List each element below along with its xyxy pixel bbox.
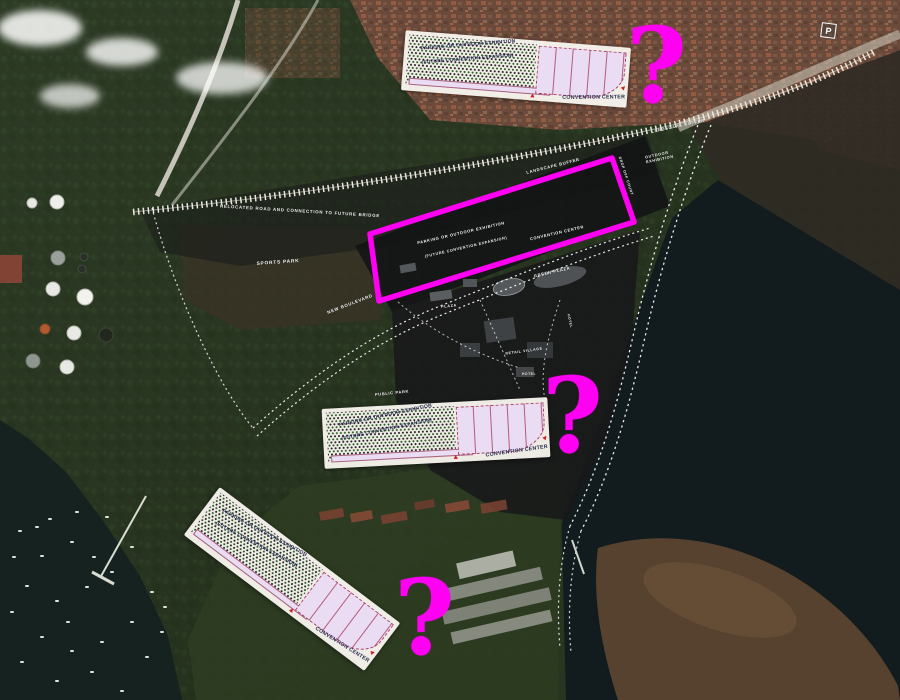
marina-boats [0,0,4,2]
question-mark-central: ? [542,364,603,468]
question-mark-south: ? [394,566,455,670]
aerial-masterplan-map: RELOCATED ROAD AND CONNECTION TO FUTURE … [0,0,900,700]
entry-arrow-icon: ▲ [452,454,459,461]
convention-hall [535,46,626,101]
label-hotel-south: HOTEL [522,372,536,376]
entry-arrow-icon: ▲ [529,92,536,100]
entry-arrow-icon: ▲ [368,649,376,657]
overlay-building-label: CONVENTION CENTER [562,94,625,100]
site-plan-overlay-central: PARKING OR OUTDOOR EXHIBITION (FUTURE CO… [322,397,551,469]
parking-sign: P [820,22,837,39]
question-mark-north: ? [626,14,687,118]
